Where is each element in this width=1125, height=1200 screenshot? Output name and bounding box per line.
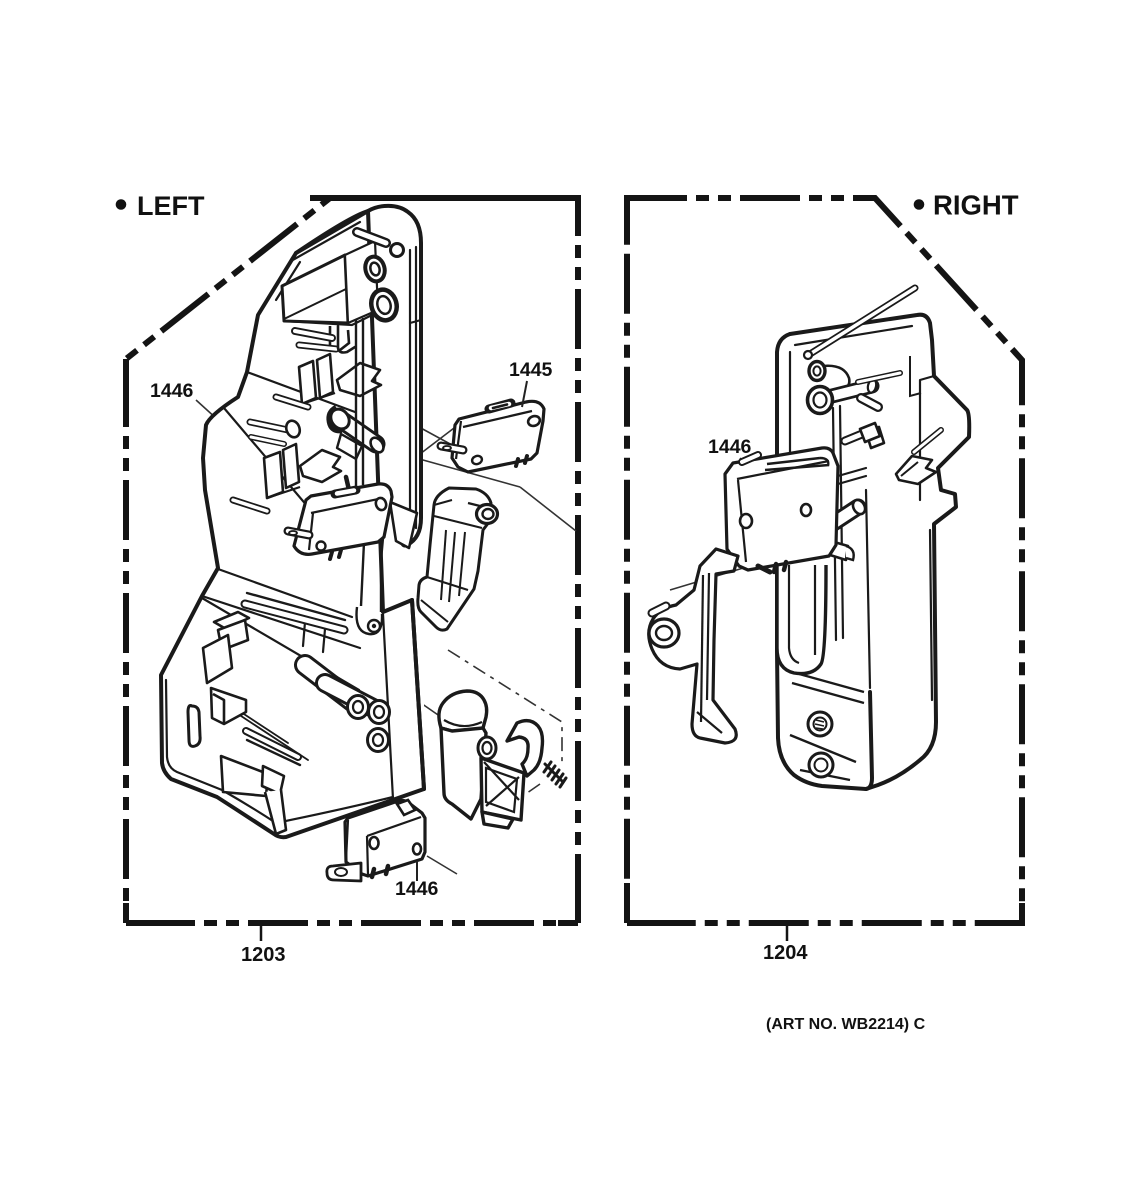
svg-text:RIGHT: RIGHT: [933, 190, 1019, 221]
svg-text:(ART NO. WB2214) C: (ART NO. WB2214) C: [766, 1016, 926, 1033]
svg-text:1446: 1446: [395, 878, 439, 900]
svg-text:1204: 1204: [763, 942, 808, 964]
svg-text:1445: 1445: [509, 359, 553, 381]
svg-text:LEFT: LEFT: [137, 191, 205, 221]
svg-text:1203: 1203: [241, 944, 286, 966]
svg-text:1446: 1446: [708, 436, 752, 458]
svg-text:1446: 1446: [150, 380, 194, 402]
